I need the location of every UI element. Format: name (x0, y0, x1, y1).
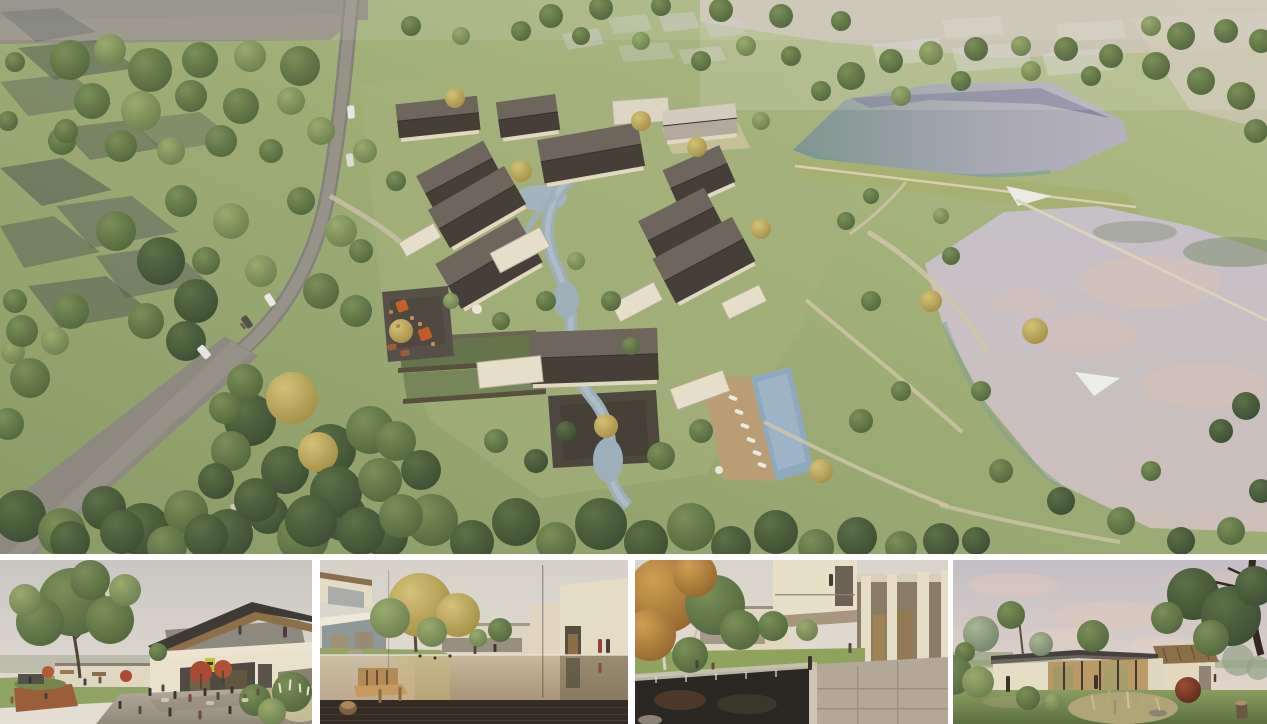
tree (10, 358, 50, 398)
tree (647, 442, 675, 470)
right-stair-box (530, 602, 560, 658)
tree (879, 49, 903, 73)
figure-mark (449, 655, 452, 658)
tree (157, 137, 185, 165)
tree (811, 81, 831, 101)
shop-canopy (92, 672, 106, 676)
tree (417, 617, 447, 647)
bench-slat-gap (366, 670, 368, 686)
tree (174, 279, 218, 323)
figure-mark (606, 639, 610, 653)
deck-plank-line (320, 707, 628, 708)
shop-canopy (60, 670, 74, 674)
figure-mark (231, 687, 234, 694)
figure-mark (217, 692, 220, 700)
stream-pond (593, 438, 623, 482)
tree (74, 83, 110, 119)
tree (94, 34, 126, 66)
thumbnail-lawn-pavilion-view (953, 560, 1267, 724)
tree (128, 303, 164, 339)
tree (1054, 37, 1078, 61)
tree (837, 212, 855, 230)
weir-streak (775, 670, 777, 677)
tree (919, 41, 943, 65)
tree (234, 478, 278, 522)
tree (1022, 318, 1048, 344)
tree (109, 574, 141, 606)
figure-mark (712, 663, 715, 670)
tree (962, 666, 994, 698)
tree (1029, 632, 1053, 656)
lake-tree-reflection (1093, 221, 1177, 243)
tree (1141, 16, 1161, 36)
tree (401, 450, 441, 490)
tree (340, 295, 372, 327)
tree (837, 62, 865, 90)
tree (192, 247, 220, 275)
figure-mark (204, 688, 207, 696)
tree (128, 48, 172, 92)
tree (1175, 677, 1201, 703)
tree (1077, 620, 1109, 652)
figure-mark (494, 644, 497, 652)
tree (536, 291, 556, 311)
tree (349, 239, 373, 263)
figure-mark (598, 639, 602, 653)
tree (298, 432, 338, 472)
glass-mullion (1117, 660, 1119, 694)
weir-streak (715, 673, 717, 680)
tree (575, 498, 627, 550)
tree (41, 327, 69, 355)
tree (1227, 82, 1255, 110)
tree (370, 598, 410, 638)
glass-joint-line (542, 565, 543, 698)
figure-mark (139, 706, 142, 714)
figure-mark (389, 310, 393, 314)
tree (849, 409, 873, 433)
tree (1107, 507, 1135, 535)
figure-mark (399, 687, 402, 701)
tree (758, 611, 788, 641)
tree (5, 52, 25, 72)
figure-mark (200, 673, 202, 689)
figure-mark (199, 711, 202, 720)
tree (443, 293, 459, 309)
glass-mullion (1081, 661, 1083, 694)
tree (1081, 66, 1101, 86)
tree (484, 429, 508, 453)
tree (1187, 67, 1215, 95)
water-edge-line (320, 654, 628, 656)
weir-streak (745, 672, 747, 679)
figure-mark (434, 657, 437, 660)
tree (223, 88, 259, 124)
tree (198, 463, 234, 499)
tree (149, 643, 167, 661)
tree (137, 237, 185, 285)
figure-mark (119, 701, 122, 709)
paving-joint (817, 708, 948, 710)
tree (234, 40, 266, 72)
tree (1099, 44, 1123, 68)
figure-mark (696, 660, 699, 668)
tree (1011, 36, 1031, 56)
tree (524, 449, 548, 473)
tree (863, 188, 879, 204)
tree (1141, 461, 1161, 481)
tree (209, 392, 241, 424)
tree (307, 117, 335, 145)
rock (1149, 710, 1167, 717)
tree (751, 219, 771, 239)
tree (353, 139, 377, 163)
tree (182, 42, 218, 78)
tree (280, 46, 320, 86)
tree (567, 252, 585, 270)
tree (632, 32, 650, 50)
tree (277, 87, 305, 115)
lake-pink-reflection (993, 289, 1057, 315)
tree (70, 560, 110, 600)
figure-mark (1214, 674, 1217, 682)
figure-mark (11, 697, 14, 704)
tree (631, 111, 651, 131)
figure-mark (347, 105, 355, 118)
tree (971, 381, 991, 401)
tree (720, 610, 760, 650)
cloud (968, 573, 1058, 597)
figure-mark (419, 655, 422, 658)
tree (622, 337, 640, 355)
figure-mark (474, 646, 477, 654)
tree (769, 4, 793, 28)
tree (861, 291, 881, 311)
tree (96, 211, 136, 251)
cantilever-railing (775, 594, 855, 596)
thumbnail-reflecting-pool-view (320, 560, 628, 724)
tree (389, 319, 413, 343)
tree (736, 36, 756, 56)
tree (121, 91, 161, 131)
figure-mark (222, 671, 224, 685)
figure-mark (599, 663, 602, 673)
tree (175, 80, 207, 112)
figure-mark (1006, 676, 1010, 692)
tree (962, 527, 990, 554)
tree (510, 160, 532, 182)
figure-mark (257, 689, 260, 696)
tree (594, 414, 618, 438)
weir-streak (685, 675, 687, 682)
white-umbrella (715, 466, 723, 474)
tree (891, 381, 911, 401)
stump-top (1235, 701, 1247, 706)
bench-slat-gap (386, 670, 388, 686)
tree (401, 16, 421, 36)
figure-mark (283, 627, 287, 638)
tree (303, 273, 339, 309)
rendering-board (0, 0, 1267, 724)
figure-mark (379, 689, 382, 703)
tree (1217, 517, 1245, 545)
tree (259, 139, 283, 163)
tree (492, 498, 540, 546)
figure-mark (45, 693, 48, 699)
shops-roofline (55, 663, 150, 666)
tree (951, 71, 971, 91)
tree (166, 321, 206, 361)
cantilever-slot (835, 566, 853, 606)
figure-mark (169, 708, 172, 717)
tree (245, 255, 277, 287)
pavilion-wall-right (1148, 658, 1163, 694)
tree (287, 187, 315, 215)
tree (325, 215, 357, 247)
tree (691, 51, 711, 71)
tree (831, 11, 851, 31)
tree (1016, 686, 1040, 710)
tree (997, 601, 1025, 629)
figure-mark (808, 656, 812, 670)
tree (1167, 527, 1195, 554)
red-umbrella (120, 670, 132, 682)
haze-overlay (0, 0, 1267, 40)
tree (469, 629, 487, 647)
glass-mullion (1135, 660, 1137, 694)
glass-seethrough-green (1103, 665, 1128, 691)
tree (964, 37, 988, 61)
figure-mark (849, 643, 852, 653)
figure-mark (174, 691, 177, 699)
tree (3, 289, 27, 313)
tree (54, 119, 78, 143)
figure-mark (829, 574, 833, 586)
tree (492, 312, 510, 330)
tree (488, 618, 512, 642)
tree (213, 203, 249, 239)
paving-joint (817, 688, 948, 690)
pond-step-edge (809, 666, 817, 724)
tree (891, 86, 911, 106)
figure-mark (29, 677, 32, 684)
pond-reflection-green (717, 694, 777, 714)
bench-slat-gap (376, 670, 378, 686)
figure-mark (431, 342, 435, 346)
tree (781, 46, 801, 66)
weir-streak (655, 676, 657, 683)
figure-mark (161, 698, 169, 702)
tree (9, 584, 41, 616)
log-stool-top (341, 701, 355, 709)
tree (1214, 19, 1238, 43)
lake-pink-reflection (1033, 315, 1137, 355)
tree (920, 290, 942, 312)
tree (1021, 61, 1041, 81)
figure-mark (99, 677, 102, 684)
tree (379, 494, 423, 538)
tree (50, 40, 90, 80)
roof-south-slope (530, 354, 659, 384)
tree (511, 21, 531, 41)
figure-mark (84, 679, 87, 686)
figure-mark (239, 626, 242, 635)
tree (809, 459, 833, 483)
glass-mullion (1099, 661, 1101, 694)
figure-mark (189, 694, 192, 702)
tree (539, 4, 563, 28)
tree (989, 459, 1013, 483)
water-reflection-opening (566, 658, 580, 688)
stream-pond (553, 282, 579, 318)
tree (1142, 52, 1170, 80)
building (496, 94, 561, 142)
thumbnail-pond-courtyard-view (635, 560, 948, 724)
tree (942, 247, 960, 265)
tree (556, 421, 576, 441)
figure-mark (396, 324, 400, 328)
grass-tuft (1068, 692, 1178, 724)
building (529, 328, 659, 388)
tree (601, 291, 621, 311)
tree (337, 507, 385, 554)
figure-mark (418, 322, 422, 326)
figure-mark (149, 688, 152, 696)
tree (386, 171, 406, 191)
tree (452, 27, 470, 45)
paving-joint (897, 662, 899, 724)
tree (1151, 602, 1183, 634)
figure-mark (242, 698, 249, 702)
tree (933, 208, 949, 224)
figure-mark (206, 701, 214, 705)
tree (1193, 620, 1229, 656)
deck-plank-line (320, 720, 628, 721)
aerial-masterplan-panel (0, 0, 1267, 554)
tree (1044, 693, 1062, 711)
tree (667, 503, 715, 551)
tree (205, 125, 237, 157)
figure-mark (229, 706, 232, 714)
tree (53, 293, 89, 329)
thumbnail-plaza-view (0, 560, 312, 724)
figure-mark (1094, 675, 1098, 689)
figure-mark (410, 316, 414, 320)
red-umbrella (42, 666, 54, 678)
tree (754, 510, 798, 554)
tree (689, 419, 713, 443)
tree (1244, 119, 1267, 143)
pond-reflection-warm (654, 690, 706, 710)
tree (672, 637, 708, 673)
tree (285, 495, 337, 547)
tree (1047, 487, 1075, 515)
deck-plank-line (320, 714, 628, 715)
tree (687, 137, 707, 157)
tree (1232, 392, 1260, 420)
tree (6, 315, 38, 347)
tree (1209, 419, 1233, 443)
figure-mark (162, 685, 165, 692)
tree (266, 372, 318, 424)
tree (752, 112, 770, 130)
tree (100, 510, 144, 554)
tree (165, 185, 197, 217)
tree (572, 27, 590, 45)
tree (445, 88, 465, 108)
paving-joint (857, 666, 859, 724)
tree (1167, 22, 1195, 50)
tree (105, 130, 137, 162)
tree (796, 619, 818, 641)
stone-paving (817, 657, 948, 724)
